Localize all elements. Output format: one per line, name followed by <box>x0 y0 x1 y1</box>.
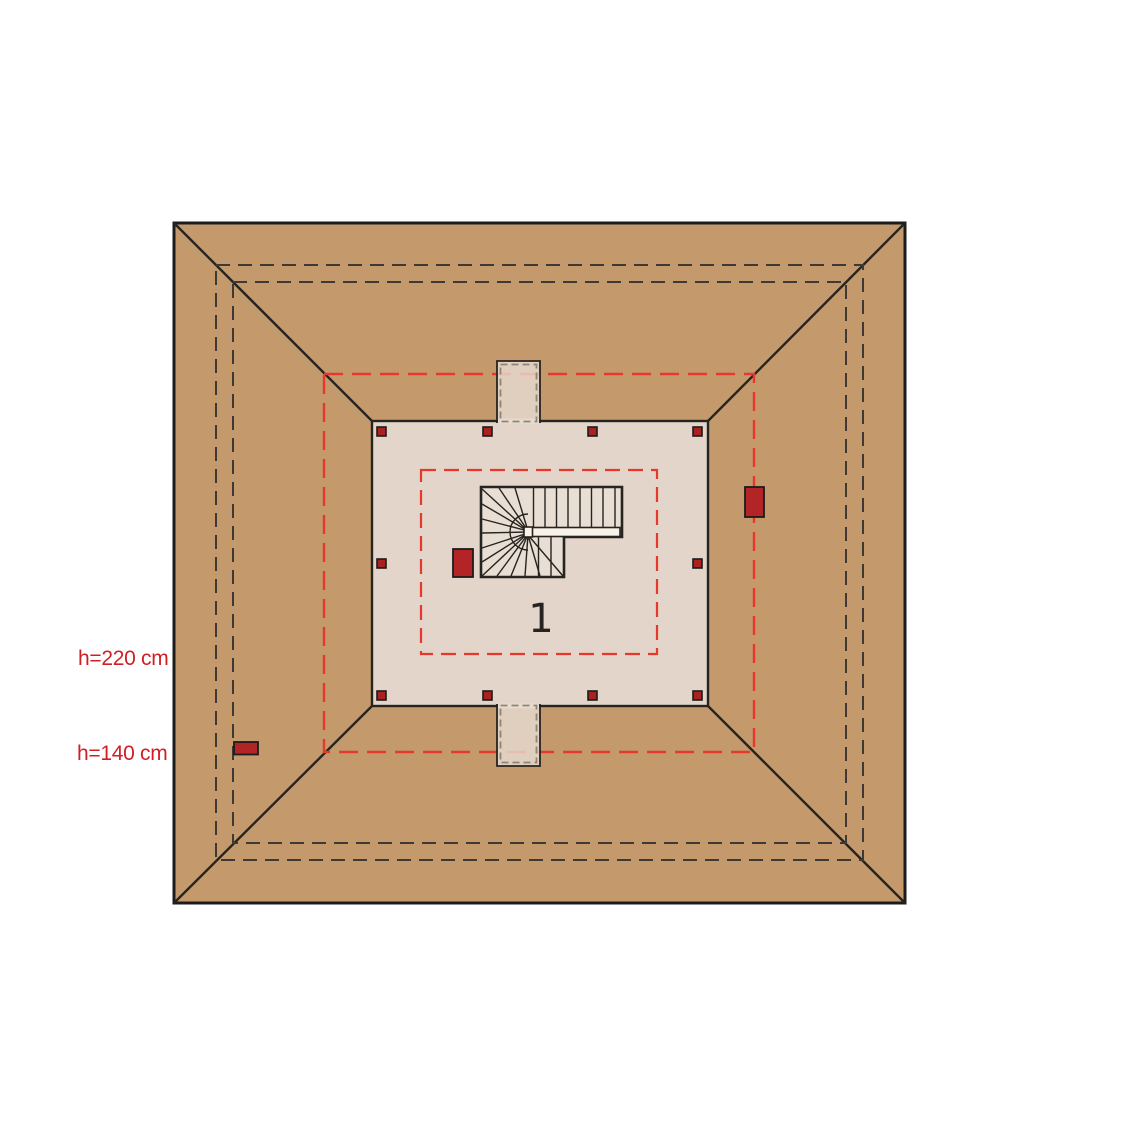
post-mid-left <box>377 559 386 568</box>
chimney-right-roof <box>745 487 764 517</box>
height-label-220: h=220 cm <box>78 647 168 670</box>
staircase-handrail <box>525 528 620 537</box>
post-top-1 <box>377 427 386 436</box>
roof-shaft-bottom-fill <box>497 704 540 766</box>
post-bottom-2 <box>483 691 492 700</box>
floor-plan-page: 1 h=220 cm h=140 cm <box>0 0 1123 1124</box>
post-bottom-1 <box>377 691 386 700</box>
room-number-label: 1 <box>528 596 553 642</box>
post-top-2 <box>483 427 492 436</box>
post-top-4 <box>693 427 702 436</box>
chimney-left-roof <box>234 742 258 755</box>
roof-shaft-top-fill <box>497 361 540 423</box>
staircase-newel-post <box>524 527 533 537</box>
post-mid-right <box>693 559 702 568</box>
floor-plan-drawing: 1 h=220 cm h=140 cm <box>0 0 1123 1124</box>
post-bottom-3 <box>588 691 597 700</box>
post-bottom-4 <box>693 691 702 700</box>
chimney-room-interior <box>453 549 473 577</box>
height-label-140: h=140 cm <box>77 742 167 765</box>
post-top-3 <box>588 427 597 436</box>
